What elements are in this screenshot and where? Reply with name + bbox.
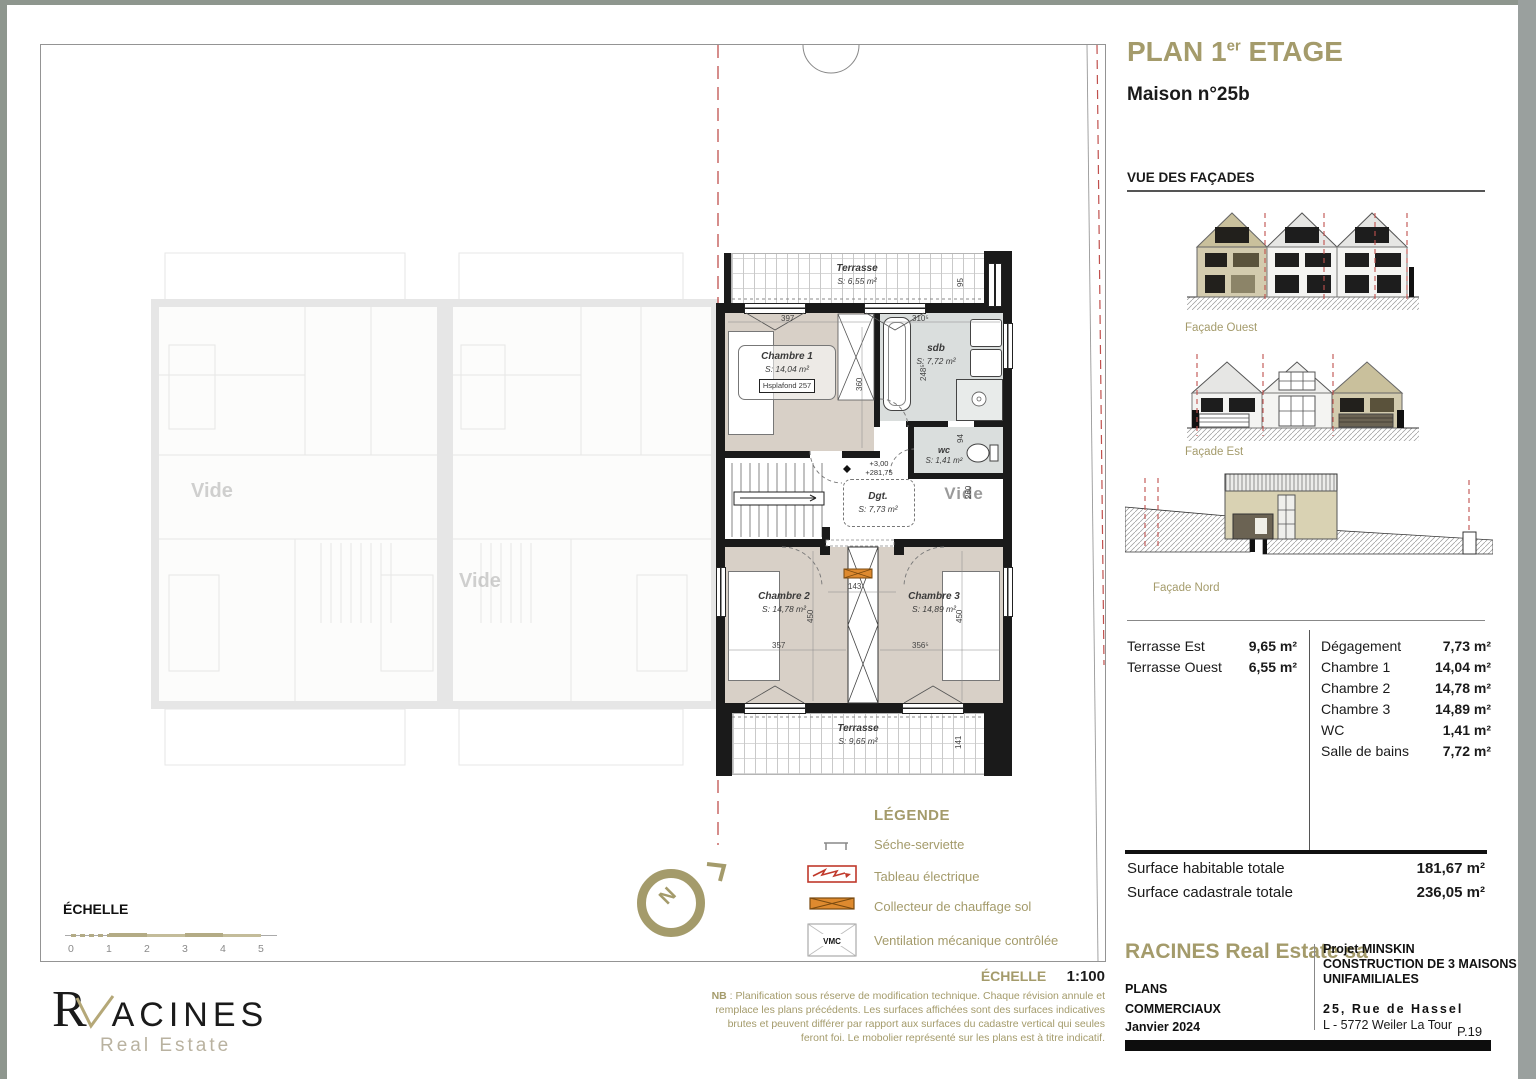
sink	[970, 319, 1002, 347]
room-name: sdb	[901, 343, 971, 356]
window	[744, 703, 806, 714]
window	[864, 303, 926, 314]
surface-row: Terrasse Est9,65 m²	[1127, 638, 1297, 654]
north-compass-icon: N	[637, 857, 729, 935]
surface-row: Dégagement7,73 m²	[1321, 638, 1491, 654]
dim-141: 141	[954, 736, 963, 749]
room-value: 14,89 m²	[1435, 701, 1491, 717]
wall	[874, 313, 880, 427]
bed-chambre2	[728, 571, 780, 681]
nb-note-bold: NB	[712, 990, 727, 1002]
surface-row: Chambre 114,04 m²	[1321, 659, 1491, 675]
dim-397: 397	[781, 314, 794, 323]
room-name: Terrasse	[812, 723, 904, 736]
scale-ratio: ÉCHELLE 1:100	[700, 968, 1105, 986]
company-logo: R ACINES Real Estate	[52, 980, 312, 1070]
towel-radiator-icon	[821, 839, 851, 853]
dim-95: 95	[956, 278, 965, 287]
bed-chambre3	[942, 571, 1000, 681]
room-value: 7,72 m²	[1443, 743, 1491, 759]
table-divider	[1309, 630, 1310, 852]
page-number: P.19	[1457, 1024, 1482, 1039]
dim-310: 310⁵	[912, 314, 929, 323]
room-name: Terrasse	[811, 263, 903, 276]
surface-row: Chambre 314,89 m²	[1321, 701, 1491, 717]
wall	[716, 303, 725, 713]
room-area: S: 14,04 m²	[741, 364, 833, 375]
facade-est-drawing	[1187, 348, 1422, 444]
room-value: 14,04 m²	[1435, 659, 1491, 675]
dim-260: 260	[964, 486, 973, 499]
legend-item-label: Séche-serviette	[874, 837, 964, 852]
logo-check-icon	[75, 992, 115, 1032]
room-value: 9,65 m²	[1249, 638, 1297, 654]
window	[1003, 323, 1013, 369]
ghost-house-a	[155, 253, 441, 765]
room-name: Chambre 2	[744, 591, 824, 604]
room-name: Chambre 3	[1321, 701, 1390, 717]
ceiling-height-tag: Hsplafond 257	[759, 379, 815, 392]
room-name: Terrasse Ouest	[1127, 659, 1222, 675]
surface-row: Terrasse Ouest6,55 m²	[1127, 659, 1297, 675]
scale-ratio-label: ÉCHELLE	[981, 968, 1046, 984]
room-name: Salle de bains	[1321, 743, 1409, 759]
room-name: WC	[1321, 722, 1344, 738]
room-name: Chambre 3	[894, 591, 974, 604]
surface-row: Salle de bains7,72 m²	[1321, 743, 1491, 759]
footer-project2: CONSTRUCTION DE 3 MAISONS	[1323, 957, 1517, 971]
compass-arrow	[699, 857, 729, 887]
wall	[894, 539, 904, 555]
plan-sheet: Vide Vide	[0, 0, 1536, 1079]
sheet-title: PLAN 1er ETAGE	[1127, 36, 1343, 68]
tick: 1	[106, 943, 112, 955]
level-annotation: +3,00 +281,75	[844, 459, 914, 478]
facade-est-label: Façade Est	[1185, 446, 1243, 458]
level-bottom: +281,75	[844, 468, 914, 477]
footer-doc2: COMMERCIAUX	[1125, 1002, 1221, 1016]
page-edge-left	[0, 0, 7, 1079]
legend-item-label: Tableau électrique	[874, 869, 980, 884]
room-name: Chambre 1	[741, 351, 833, 364]
total-label: Surface habitable totale	[1127, 860, 1285, 877]
facade-ouest-drawing	[1187, 205, 1422, 320]
dim-143: 143	[848, 582, 861, 591]
footer-doc1: PLANS	[1125, 982, 1167, 996]
room-area: S: 9,65 m²	[812, 736, 904, 747]
ghost-vide-label-b: Vide	[459, 570, 501, 592]
title-prefix: PLAN 1	[1127, 36, 1227, 67]
parcel-line-red	[1097, 45, 1104, 665]
house-number: Maison n°25b	[1127, 84, 1250, 106]
dim-248: 248⁵	[919, 364, 928, 381]
vmc-text: VMC	[823, 937, 841, 946]
surface-row: WC1,41 m²	[1321, 722, 1491, 738]
room-area: S: 1,41 m²	[914, 456, 974, 466]
sdb-label: sdb S: 7,72 m²	[901, 343, 971, 366]
total-row: Surface habitable totale181,67 m²	[1127, 860, 1485, 877]
sink	[970, 349, 1002, 377]
scalebar-ticks: 0 1 2 3 4 5	[71, 943, 271, 955]
footer-project3: UNIFAMILIALES	[1323, 972, 1419, 986]
dgt-label: Dgt. S: 7,73 m²	[846, 491, 910, 514]
legend-title: LÉGENDE	[874, 807, 950, 824]
terrace-top-label: Terrasse S: 6,55 m²	[811, 263, 903, 286]
wall	[820, 539, 830, 555]
footer-addr1: 25, Rue de Hassel	[1323, 1002, 1463, 1016]
wall	[974, 421, 1012, 427]
chambre1-label: Chambre 1 S: 14,04 m² Hsplafond 257	[738, 345, 836, 400]
wall	[724, 253, 731, 305]
legend-item-label: Collecteur de chauffage sol	[874, 899, 1031, 914]
tick: 3	[182, 943, 188, 955]
room-area: S: 7,72 m²	[901, 356, 971, 367]
boundary-arc	[803, 45, 859, 73]
dim-450-right: 450	[955, 610, 964, 623]
legend-item-label: Ventilation mécanique contrôlée	[874, 933, 1058, 948]
room-value: 1,41 m²	[1443, 722, 1491, 738]
nb-note-text: : Planification sous réserve de modifica…	[715, 990, 1105, 1044]
total-value: 236,05 m²	[1417, 884, 1485, 901]
room-value: 6,55 m²	[1249, 659, 1297, 675]
legend: LÉGENDE Séche-serviette Tableau électriq…	[801, 807, 1101, 957]
divider	[1127, 620, 1485, 621]
divider	[1127, 190, 1485, 192]
window	[716, 567, 726, 617]
room-area: S: 7,73 m²	[846, 504, 910, 515]
tick: 5	[258, 943, 264, 955]
window	[1003, 567, 1013, 617]
facade-nord-drawing	[1125, 462, 1493, 580]
terrace-bottom-label: Terrasse S: 9,65 m²	[812, 723, 904, 746]
footer-divider	[1314, 944, 1315, 1030]
scalebar-bar	[71, 931, 271, 941]
wall	[725, 451, 810, 458]
facade-ouest-label: Façade Ouest	[1185, 322, 1257, 334]
tick: 4	[220, 943, 226, 955]
footer-bar	[1125, 1040, 1491, 1051]
facades-section-title: VUE DES FAÇADES	[1127, 170, 1255, 185]
window	[902, 703, 964, 714]
level-top: +3,00	[844, 459, 914, 468]
logo-tagline: Real Estate	[100, 1035, 312, 1057]
footer-addr2: L - 5772 Weiler La Tour	[1323, 1018, 1452, 1032]
total-row: Surface cadastrale totale236,05 m²	[1127, 884, 1485, 901]
dim-450-left: 450	[806, 610, 815, 623]
room-name: Chambre 1	[1321, 659, 1390, 675]
ghost-vide-label-a: Vide	[191, 480, 233, 502]
info-panel: PLAN 1er ETAGE Maison n°25b VUE DES FAÇA…	[1125, 0, 1521, 1079]
scalebar-label: ÉCHELLE	[63, 901, 128, 917]
ghost-house-b	[449, 253, 715, 765]
wall	[716, 539, 824, 547]
tick: 0	[68, 943, 74, 955]
room-name: wc	[914, 445, 974, 456]
wall	[716, 713, 732, 776]
dim-357: 357	[772, 641, 785, 650]
total-value: 181,67 m²	[1417, 860, 1485, 877]
title-sup: er	[1227, 38, 1241, 55]
surface-row: Chambre 214,78 m²	[1321, 680, 1491, 696]
wall	[896, 539, 1012, 547]
window	[744, 303, 806, 314]
room-area: S: 6,55 m²	[811, 276, 903, 287]
divider-thick	[1125, 850, 1487, 854]
scalebar: ÉCHELLE 0 1 2 3 4 5	[63, 901, 293, 955]
room-name: Chambre 2	[1321, 680, 1390, 696]
floor-heating-collector-icon	[809, 897, 855, 911]
vmc-icon: VMC	[807, 923, 857, 957]
drawing-area: Vide Vide	[40, 44, 1106, 962]
wall	[984, 713, 1012, 776]
electric-panel-icon	[807, 865, 857, 883]
room-value: 14,78 m²	[1435, 680, 1491, 696]
total-label: Surface cadastrale totale	[1127, 884, 1293, 901]
tick: 2	[144, 943, 150, 955]
scale-ratio-value: 1:100	[1067, 968, 1105, 985]
wall	[842, 451, 880, 458]
title-suffix: ETAGE	[1241, 36, 1343, 67]
wall	[908, 473, 1012, 479]
wc-label: wc S: 1,41 m²	[914, 445, 974, 466]
room-name: Terrasse Est	[1127, 638, 1205, 654]
shower	[956, 379, 1003, 421]
window	[988, 263, 1002, 307]
floorplan-maison-25b: Terrasse S: 6,55 m² Chambre 1 S: 14,04 m…	[716, 251, 1012, 776]
room-value: 7,73 m²	[1443, 638, 1491, 654]
footer-project1: Projet MINSKIN	[1323, 942, 1415, 956]
footer-date: Janvier 2024	[1125, 1020, 1200, 1034]
room-name: Dégagement	[1321, 638, 1401, 654]
logo-rest: ACINES	[112, 996, 269, 1034]
dim-94: 94	[956, 434, 965, 443]
room-name: Dgt.	[846, 491, 910, 504]
dim-356: 356⁵	[912, 641, 929, 650]
facade-nord-label: Façade Nord	[1153, 582, 1219, 594]
dim-360: 360	[855, 378, 864, 391]
nb-note: NB : Planification sous réserve de modif…	[700, 990, 1105, 1045]
